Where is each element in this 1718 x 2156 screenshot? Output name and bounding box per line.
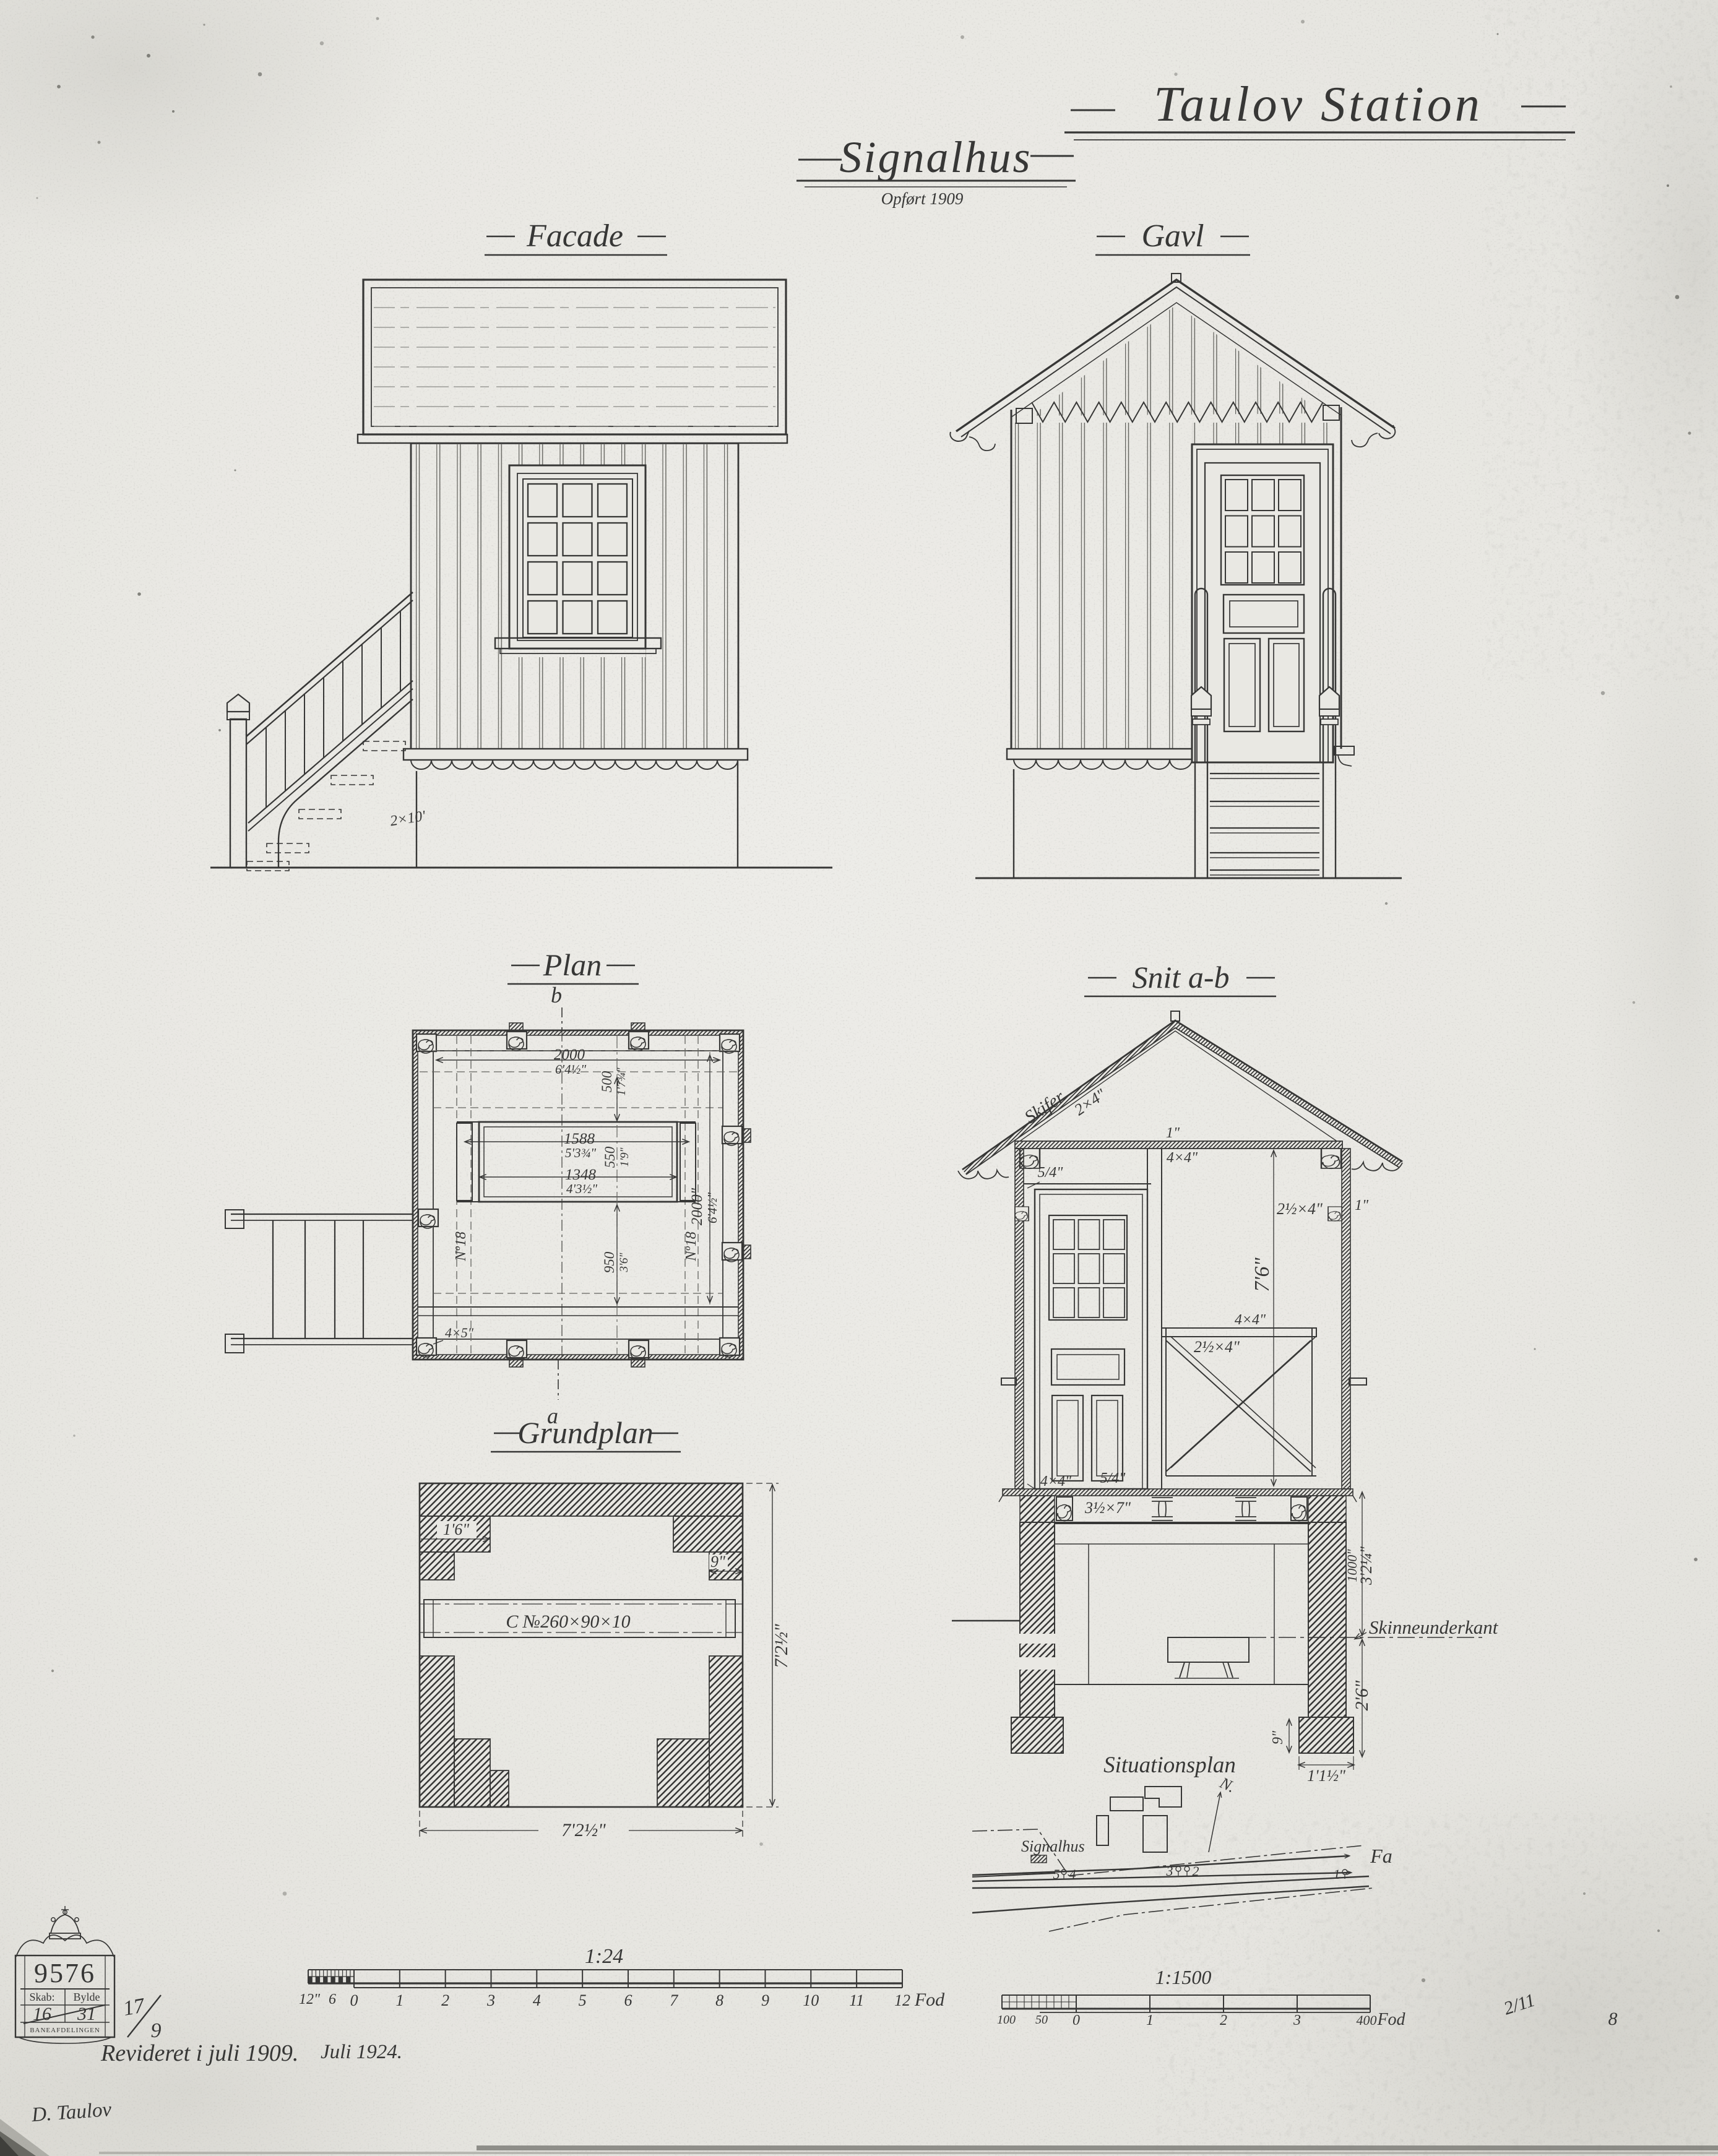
svg-text:4'3½": 4'3½" [566, 1181, 597, 1196]
svg-text:4: 4 [533, 1991, 541, 2009]
svg-text:2'6": 2'6" [1352, 1680, 1372, 1710]
svg-text:Fa: Fa [1370, 1845, 1392, 1867]
svg-text:Grundplan: Grundplan [517, 1415, 653, 1450]
svg-text:6'4½": 6'4½" [555, 1062, 586, 1077]
svg-text:4×5": 4×5" [445, 1325, 474, 1340]
svg-text:4×4": 4×4" [1235, 1312, 1266, 1328]
svg-text:5/4": 5/4" [1100, 1470, 1126, 1486]
svg-text:5'3¾": 5'3¾" [565, 1145, 596, 1160]
svg-text:Signalhus: Signalhus [839, 132, 1032, 182]
svg-text:Facade: Facade [526, 218, 623, 254]
svg-text:550: 550 [602, 1146, 618, 1168]
svg-text:12: 12 [894, 1991, 910, 2009]
svg-text:Plan: Plan [543, 947, 602, 982]
svg-text:9": 9" [710, 1553, 725, 1571]
svg-text:9576: 9576 [34, 1958, 96, 1988]
svg-text:100: 100 [997, 2013, 1016, 2027]
svg-text:7'2½": 7'2½" [561, 1820, 606, 1840]
svg-text:Nº18: Nº18 [453, 1231, 469, 1261]
svg-text:500: 500 [599, 1071, 615, 1092]
svg-text:Signalhus: Signalhus [1021, 1837, 1085, 1855]
svg-text:10: 10 [803, 1991, 819, 2009]
svg-text:7'2½": 7'2½" [771, 1624, 792, 1668]
svg-text:8: 8 [1608, 2009, 1618, 2029]
svg-text:6: 6 [624, 1991, 632, 2009]
svg-text:Situationsplan: Situationsplan [1103, 1753, 1236, 1778]
svg-text:3: 3 [486, 1991, 495, 2009]
svg-text:6'4½": 6'4½" [705, 1192, 720, 1223]
svg-text:Skab:: Skab: [29, 1991, 54, 2003]
svg-text:7'6": 7'6" [1251, 1257, 1274, 1292]
svg-text:Gavl: Gavl [1141, 218, 1204, 254]
svg-text:Revideret i juli 1909.: Revideret i juli 1909. [100, 2040, 298, 2066]
svg-text:Fod: Fod [914, 1990, 945, 2010]
svg-text:Opført 1909: Opført 1909 [881, 189, 964, 208]
svg-text:2000: 2000 [554, 1046, 585, 1063]
svg-text:3'6": 3'6" [618, 1252, 631, 1272]
svg-text:31: 31 [77, 2004, 96, 2024]
svg-text:C №260×90×10: C №260×90×10 [506, 1611, 630, 1632]
svg-text:2000": 2000" [689, 1188, 706, 1225]
svg-text:Bylde: Bylde [74, 1991, 100, 2003]
svg-text:7: 7 [670, 1991, 678, 2009]
svg-text:Skinneunderkant: Skinneunderkant [1369, 1616, 1499, 1638]
svg-text:5: 5 [1053, 1866, 1060, 1882]
svg-text:9: 9 [761, 1991, 769, 2009]
svg-text:6: 6 [329, 1991, 336, 2007]
svg-text:9": 9" [1270, 1730, 1286, 1744]
svg-text:1": 1" [1355, 1197, 1369, 1214]
svg-text:4×4": 4×4" [1040, 1473, 1072, 1490]
svg-text:Snit a-b: Snit a-b [1133, 960, 1230, 994]
svg-text:b: b [551, 983, 562, 1007]
svg-text:1588: 1588 [564, 1131, 595, 1147]
svg-text:5: 5 [579, 1991, 587, 2009]
svg-text:3: 3 [1293, 2012, 1301, 2029]
svg-text:Fod: Fod [1376, 2010, 1405, 2029]
svg-text:0: 0 [1073, 2012, 1080, 2029]
svg-text:1'6": 1'6" [443, 1520, 470, 1538]
svg-text:950: 950 [602, 1251, 617, 1273]
svg-text:12": 12" [299, 1991, 321, 2007]
svg-text:Taulov Station: Taulov Station [1154, 77, 1483, 132]
svg-text:1'1½": 1'1½" [1307, 1767, 1345, 1785]
svg-text:0: 0 [350, 1991, 358, 2009]
svg-text:1: 1 [395, 1991, 404, 2009]
svg-text:50: 50 [1035, 2013, 1048, 2027]
svg-text:1: 1 [1334, 1866, 1340, 1882]
svg-text:4: 4 [1069, 1866, 1076, 1882]
svg-text:3½×7": 3½×7" [1084, 1499, 1131, 1517]
svg-text:2: 2 [1193, 1863, 1199, 1879]
svg-text:4×4": 4×4" [1167, 1150, 1198, 1166]
svg-text:1348: 1348 [565, 1166, 597, 1183]
svg-text:1: 1 [1146, 2012, 1154, 2029]
svg-text:3'2¼": 3'2¼" [1357, 1546, 1375, 1585]
svg-text:1'9": 1'9" [618, 1147, 631, 1166]
svg-text:Nº18: Nº18 [683, 1231, 699, 1261]
svg-text:2½×4": 2½×4" [1277, 1200, 1323, 1218]
svg-text:8: 8 [715, 1991, 723, 2009]
svg-text:5/4": 5/4" [1038, 1165, 1064, 1181]
svg-text:BANEAFDELINGEN: BANEAFDELINGEN [30, 2027, 100, 2034]
svg-text:2½×4": 2½×4" [1194, 1338, 1240, 1356]
svg-text:1:1500: 1:1500 [1155, 1966, 1212, 1988]
svg-text:400: 400 [1357, 2012, 1377, 2028]
svg-text:Juli 1924.: Juli 1924. [321, 2041, 402, 2063]
svg-text:2: 2 [441, 1991, 449, 2009]
svg-text:1": 1" [1166, 1125, 1180, 1141]
svg-text:1'7¾": 1'7¾" [615, 1067, 628, 1095]
svg-text:2: 2 [1220, 2012, 1227, 2029]
svg-text:9: 9 [151, 2019, 162, 2042]
svg-text:1:24: 1:24 [585, 1945, 623, 1968]
svg-text:11: 11 [849, 1991, 864, 2009]
svg-text:3: 3 [1166, 1863, 1173, 1879]
